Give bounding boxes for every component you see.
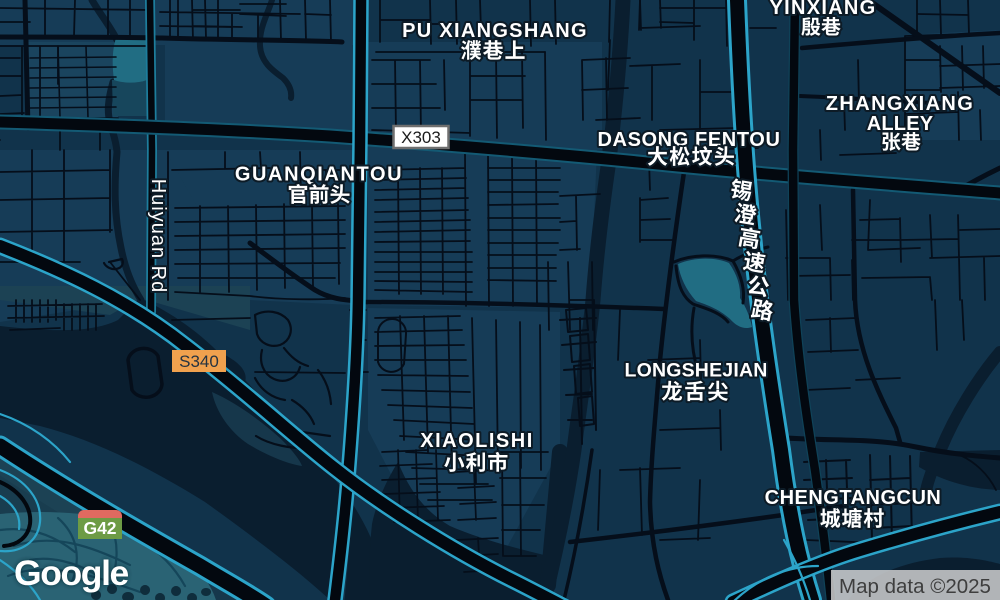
svg-text:Map data ©2025: Map data ©2025 [839, 575, 991, 598]
svg-text:ZHANGXIANG: ZHANGXIANG [826, 93, 974, 115]
svg-text:Huiyuan Rd: Huiyuan Rd [147, 179, 169, 294]
svg-text:Google: Google [14, 553, 129, 593]
svg-text:CHENGTANGCUN: CHENGTANGCUN [765, 487, 942, 509]
svg-text:G42: G42 [83, 518, 116, 538]
svg-text:YINXIANG: YINXIANG [769, 0, 876, 19]
svg-text:DASONG FENTOU: DASONG FENTOU [598, 129, 781, 151]
svg-text:X303: X303 [401, 128, 441, 147]
svg-text:GUANQIANTOU: GUANQIANTOU [235, 164, 403, 186]
svg-text:LONGSHEJIAN: LONGSHEJIAN [624, 360, 767, 382]
svg-text:XIAOLISHI: XIAOLISHI [420, 430, 534, 452]
svg-text:S340: S340 [179, 352, 219, 371]
